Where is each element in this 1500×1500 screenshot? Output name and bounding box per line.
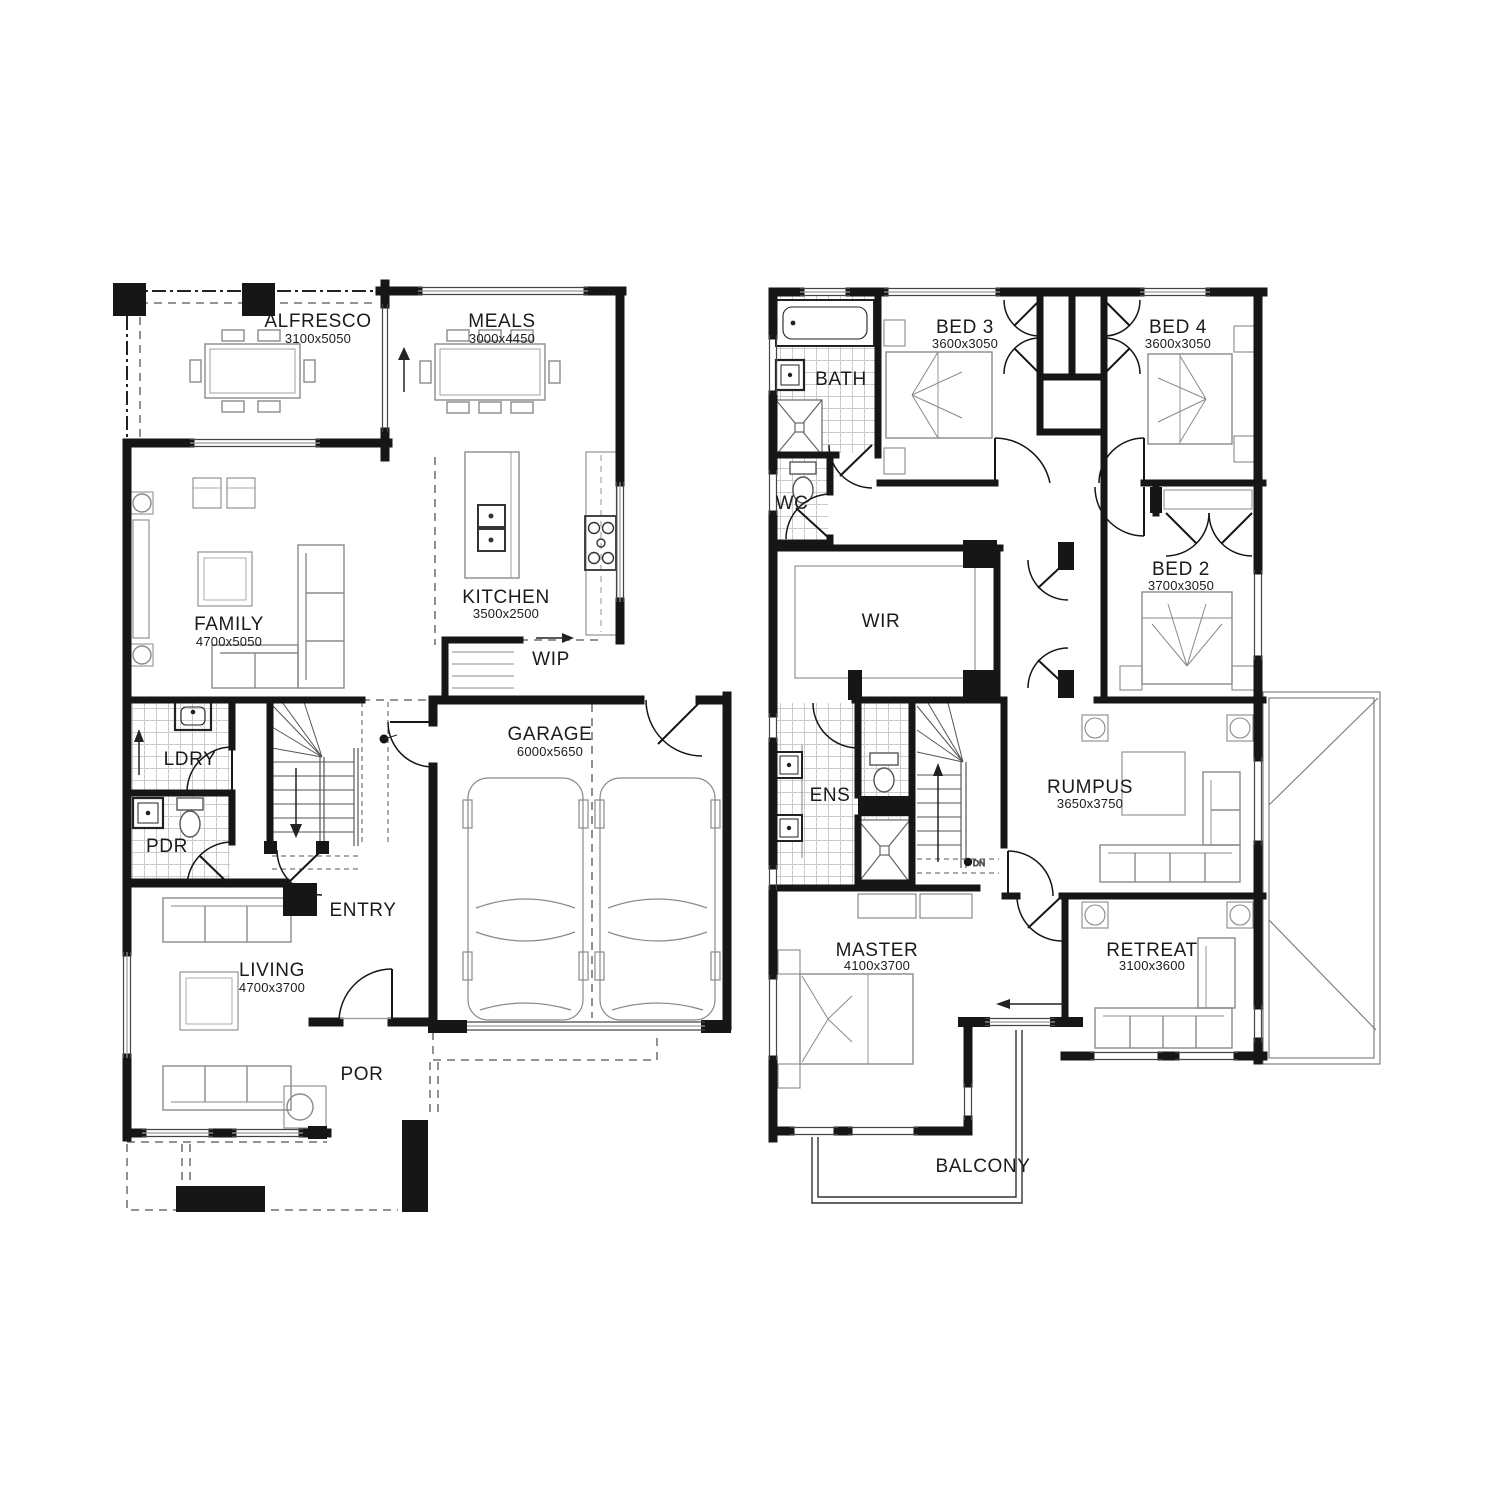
wall-post [308, 1126, 327, 1139]
room-dims-kitchen: 3500x2500 [473, 606, 539, 621]
room-dims-living: 4700x3700 [239, 980, 305, 995]
room-label-bed4: BED 4 [1149, 317, 1207, 338]
entry-arrow-icon [398, 347, 410, 392]
room-dims-bed3: 3600x3050 [932, 336, 998, 351]
room-label-garage: GARAGE [508, 724, 593, 745]
room-dims-bed4: 3600x3050 [1145, 336, 1211, 351]
sliding-door [383, 304, 388, 432]
ground-floor-plan: ALFRESCO 3100x5050 MEALS 3000x4450 FAMIL… [113, 283, 731, 1212]
room-label-entry: ENTRY [329, 900, 396, 921]
floor-plan-drawing: ALFRESCO 3100x5050 MEALS 3000x4450 FAMIL… [0, 0, 1500, 1500]
garage-pier [701, 1020, 731, 1033]
room-dims-meals: 3000x4450 [469, 331, 535, 346]
balcony-parapet [812, 1030, 1022, 1203]
room-label-ldry: LDRY [164, 749, 217, 770]
bathtub-icon [776, 300, 874, 346]
room-label-family: FAMILY [194, 614, 264, 635]
stairs-icon [272, 702, 397, 869]
wip-arrow-icon [536, 633, 574, 643]
room-label-bed3: BED 3 [936, 317, 994, 338]
robe-shelf [920, 894, 972, 918]
tv-unit-icon [284, 1086, 326, 1128]
pantry-shelves-icon [452, 652, 514, 688]
car-icon [595, 778, 720, 1020]
floor-plan-page: ALFRESCO 3100x5050 MEALS 3000x4450 FAMIL… [0, 0, 1500, 1500]
room-label-bath: BATH [815, 369, 867, 390]
room-label-pdr: PDR [146, 836, 188, 857]
room-label-living: LIVING [239, 960, 305, 981]
wall-post [264, 841, 277, 854]
room-dims-master: 4100x3700 [844, 958, 910, 973]
room-label-ens: ENS [810, 785, 851, 806]
room-dims-retreat: 3100x3600 [1119, 958, 1185, 973]
robe-shelf [1164, 490, 1252, 509]
bed-icon [1120, 592, 1254, 690]
robe-shelf [858, 894, 916, 918]
porch-pier [402, 1120, 428, 1212]
room-label-alfresco: ALFRESCO [264, 311, 371, 332]
room-label-rumpus: RUMPUS [1047, 777, 1133, 798]
room-dims-alfresco: 3100x5050 [285, 331, 351, 346]
wall-post [316, 841, 329, 854]
alfresco-roofline [113, 283, 378, 449]
room-label-meals: MEALS [468, 311, 535, 332]
roof-outline [1263, 692, 1380, 1064]
shower-icon [858, 820, 910, 883]
garage-pier [428, 1020, 467, 1033]
bath-basin-icon [776, 360, 804, 390]
room-label-kitchen: KITCHEN [462, 587, 550, 608]
shower-icon [776, 400, 822, 455]
room-dims-family: 4700x5050 [196, 634, 262, 649]
balcony-arrow-icon [996, 999, 1064, 1009]
kitchen-island-icon [465, 452, 519, 578]
room-dims-bed2: 3700x3050 [1148, 578, 1214, 593]
room-dims-garage: 6000x5650 [517, 744, 583, 759]
stairs-icon: DN [917, 703, 999, 873]
room-label-balcony: BALCONY [935, 1156, 1030, 1177]
first-floor-plan: DN [770, 289, 1381, 1204]
powder-basin-icon [133, 798, 163, 828]
living-sofa-icon [163, 898, 291, 942]
family-coffee-table-icon [198, 552, 252, 606]
room-label-wc: WC [776, 493, 809, 514]
porch-pier [176, 1186, 265, 1212]
room-label-wir: WIR [862, 611, 901, 632]
stairs-dn-label: DN [973, 858, 985, 868]
living-table-icon [180, 972, 238, 1030]
entry-pillar [283, 883, 317, 916]
living-sofa-icon [163, 1066, 291, 1110]
room-dims-rumpus: 3650x3750 [1057, 796, 1123, 811]
family-wall-unit-icon [131, 492, 153, 666]
room-label-wip: WIP [532, 649, 570, 670]
family-side-tables-icon [193, 478, 255, 508]
room-label-por: POR [341, 1064, 384, 1085]
car-icon [463, 778, 588, 1020]
room-label-bed2: BED 2 [1152, 559, 1210, 580]
toilet-icon [177, 798, 203, 837]
kitchen-bench-icon [585, 452, 617, 635]
